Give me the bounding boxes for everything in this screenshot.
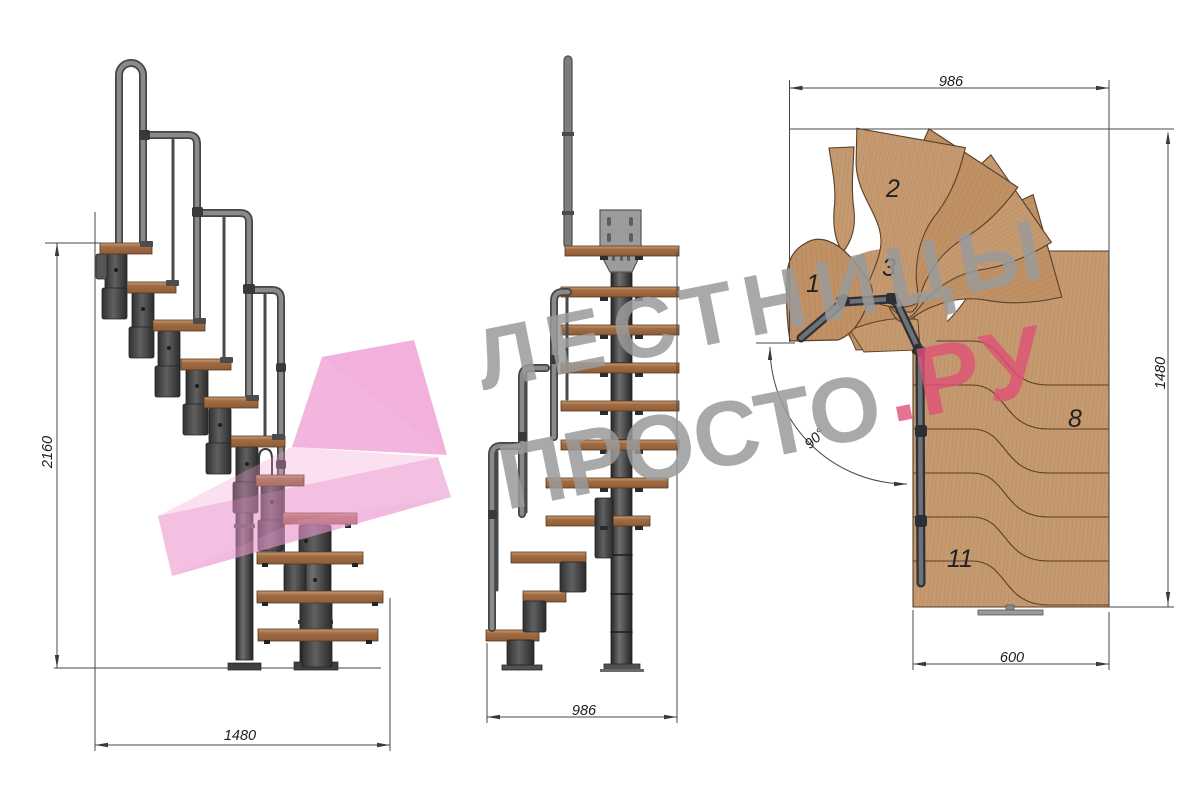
- svg-text:2: 2: [885, 175, 900, 203]
- svg-text:986: 986: [572, 703, 597, 719]
- svg-text:1480: 1480: [224, 728, 256, 744]
- svg-text:600: 600: [1000, 650, 1024, 666]
- svg-text:1480: 1480: [1153, 357, 1169, 389]
- svg-text:2160: 2160: [40, 436, 56, 469]
- svg-text:986: 986: [939, 74, 964, 90]
- svg-text:8: 8: [1068, 405, 1082, 433]
- svg-text:11: 11: [947, 545, 973, 573]
